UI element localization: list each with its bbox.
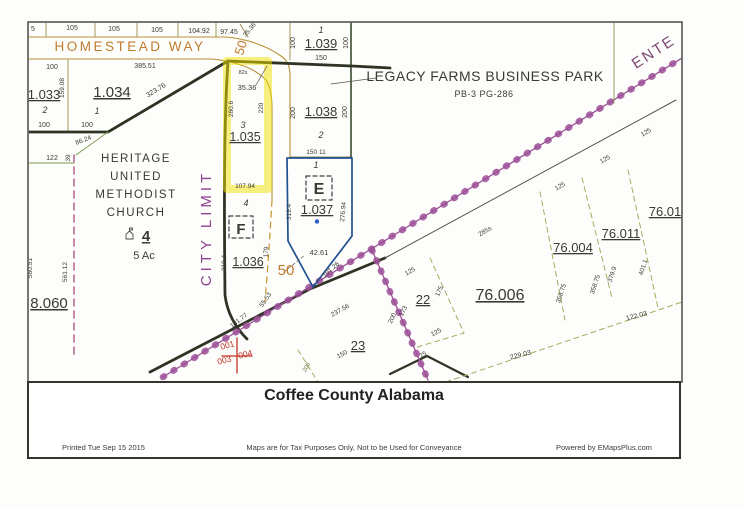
dim-82s: 82s [239, 70, 248, 76]
parcel-76-004: 76.004 [553, 240, 593, 255]
lot-width-97-45: 97.45 [220, 29, 238, 36]
parcel-76-006: 76.006 [476, 287, 525, 304]
dim-100-a: 100 [46, 64, 58, 71]
parcel-1-037: 1.037 [301, 202, 334, 217]
lot-1-1039: 1 [318, 25, 323, 35]
parcel-1-036: 1.036 [232, 255, 263, 269]
dim-385-51: 385.51 [134, 63, 156, 70]
city-limit-label: CITY LIMIT [198, 170, 215, 286]
lot-1-1037: 1 [313, 160, 318, 170]
parcel-22: 22 [416, 292, 430, 307]
lot-width-105-c: 105 [151, 27, 163, 34]
lot-width-5: 5 [31, 26, 35, 33]
dim-150-1039: 150 [315, 55, 327, 62]
parcel-1-035: 1.035 [229, 130, 260, 144]
parcel-map: 5105105105104.9297.4535.36HOMESTEAD WAY1… [0, 0, 745, 509]
map-title: Coffee County Alabama [28, 387, 680, 405]
parcel-4-church: 4 [142, 228, 151, 245]
tax-map-page: 5105105105104.9297.4535.36HOMESTEAD WAY1… [0, 0, 745, 509]
dim-200-1038-w: 200 [290, 107, 297, 119]
flood-zone-f: F [236, 221, 245, 238]
church-name-line4: CHURCH [107, 207, 166, 219]
dim-319-4-e: 319.4 [286, 203, 293, 220]
dim-100-1039-w: 100 [290, 37, 297, 49]
dim-200-1038-e: 200 [342, 106, 349, 118]
church-name-line3: METHODIST [95, 189, 176, 201]
lot-1-1034: 1 [94, 106, 99, 116]
street-homestead-way: HOMESTEAD WAY [54, 39, 205, 54]
parcel-76-01: 76.01 [649, 204, 682, 219]
powered-by-text: Powered by EMapsPlus.com [556, 443, 652, 452]
parcel-1-038: 1.038 [305, 104, 338, 119]
lot-width-104-92: 104.92 [188, 28, 210, 35]
parcel-1-033: 1.033 [28, 87, 61, 102]
flood-zone-e: E [314, 181, 325, 198]
dim-122: 122 [46, 155, 58, 162]
church-acreage: 5 Ac [133, 250, 155, 262]
church-name-line2: UNITED [110, 171, 162, 183]
dim-220: 220 [258, 102, 265, 113]
dim-35-36: 35.36 [238, 83, 257, 92]
dim-100-c: 100 [81, 122, 93, 129]
dim-42-61: 42.61 [310, 248, 329, 257]
parcel-76-011: 76.011 [602, 226, 641, 241]
parcel-1037-point-icon [315, 219, 319, 223]
church-name-line1: HERITAGE [101, 153, 171, 165]
lot-2-1033: 2 [41, 105, 47, 115]
road-50-mid: 50 [278, 262, 295, 279]
parcel-1-034: 1.034 [93, 84, 131, 101]
parcel-1-039: 1.039 [305, 36, 338, 51]
dim-107-94: 107.94 [235, 183, 255, 190]
lot-2-1038: 2 [317, 130, 323, 140]
lot-3-1035: 3 [240, 120, 245, 130]
dim-280-6: 280.6 [228, 100, 235, 117]
dim-179: 179 [263, 246, 271, 258]
dim-561-12: 561.12 [62, 262, 69, 282]
lot-4-1036: 4 [243, 198, 248, 208]
dim-39: 39 [65, 154, 72, 162]
lot-width-105-b: 105 [108, 26, 120, 33]
dim-319-4-f: 319.4 [221, 254, 228, 271]
subdivision-plat: PB-3 PG-286 [454, 89, 513, 99]
dim-150-11: 150 11 [306, 149, 326, 156]
parcel-23: 23 [351, 338, 365, 353]
parcel-8-060: 8.060 [30, 295, 68, 312]
subdivision-name: LEGACY FARMS BUSINESS PARK [366, 68, 603, 84]
dim-100-b: 100 [38, 122, 50, 129]
dim-100-1039-e: 100 [343, 37, 350, 49]
lot-width-105-a: 105 [66, 25, 78, 32]
